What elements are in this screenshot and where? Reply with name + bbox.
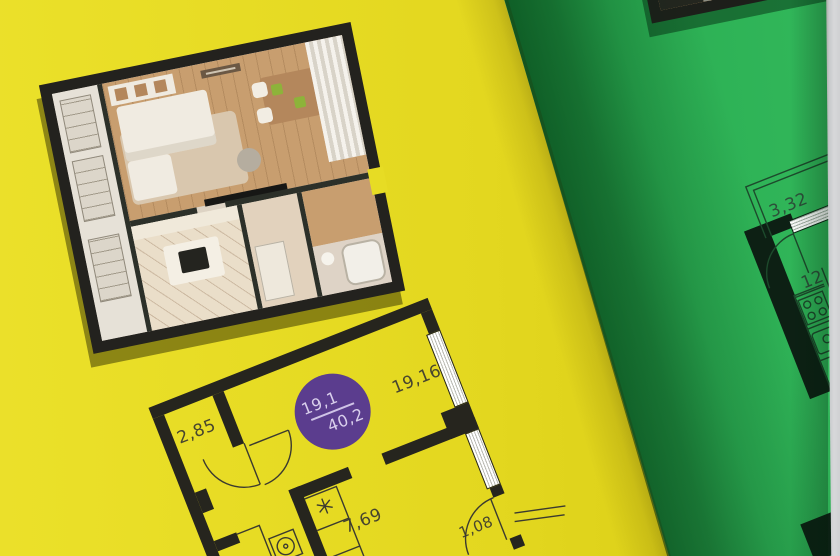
apartment-3d-render-right	[580, 0, 840, 24]
apartment-3d-render	[39, 22, 405, 354]
brochure-pages: 2,85 19,16 7,69 1,08 19,1 40,2	[0, 0, 840, 556]
chair	[251, 81, 269, 99]
cooktop	[178, 246, 210, 273]
chair	[256, 107, 274, 125]
bathtub	[340, 238, 388, 287]
render-interior-right	[593, 0, 840, 11]
render-interior	[52, 35, 392, 341]
floor-plan-left: 2,85 19,16 7,69 1,08 19,1 40,2	[148, 298, 519, 556]
shelf-rack	[72, 155, 116, 222]
shelf-rack	[88, 233, 132, 302]
floor-plan-right: 3,32 12	[652, 77, 840, 556]
plan-thin-lines-right	[652, 70, 840, 556]
brochure-photo: 2,85 19,16 7,69 1,08 19,1 40,2	[0, 0, 840, 556]
shelf-rack	[59, 94, 101, 153]
shelf-box	[114, 87, 128, 101]
shelf-box	[153, 79, 167, 93]
plate	[294, 96, 307, 109]
kitchen-counter-strip	[593, 0, 704, 11]
wall-decor	[200, 63, 241, 79]
plate	[271, 83, 284, 96]
shelf-box	[134, 83, 148, 97]
